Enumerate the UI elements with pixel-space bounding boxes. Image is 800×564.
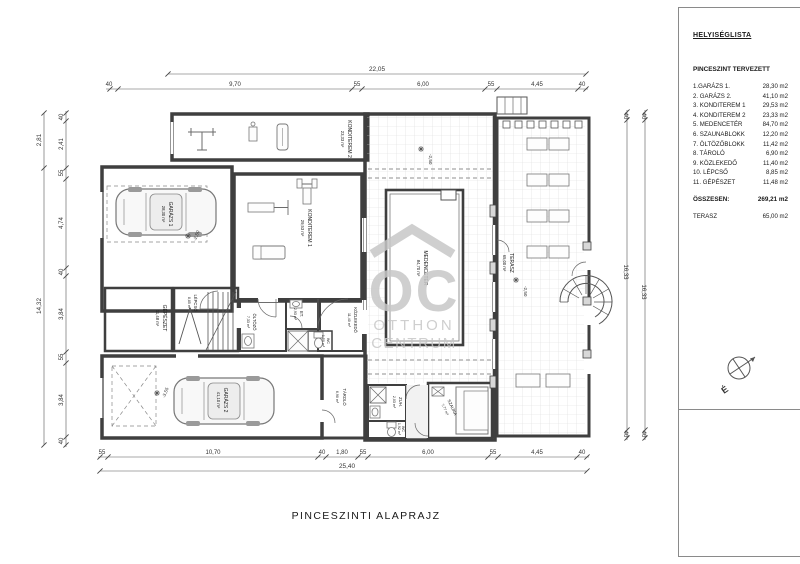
terrace-tiles: [499, 121, 585, 434]
total-row: ÖSSZESEN:269,21 m2: [693, 195, 788, 205]
drawing-sheet: 22,05 40 9,70 55 6,00 55 4,45 40 55 10,7…: [0, 0, 800, 564]
room-name: 5. MEDENCETÉR: [693, 120, 742, 130]
room-name: 9. KÖZLEKEDŐ: [693, 159, 737, 169]
floor-plan-svg: 22,05 40 9,70 55 6,00 55 4,45 40 55 10,7…: [0, 0, 678, 564]
level-garazs2: -3,55: [161, 386, 169, 398]
room-name: 4. KONDITEREM 2: [693, 111, 745, 121]
room-area: 8,85 m2: [766, 168, 788, 178]
label-area: 23,33 m²: [340, 131, 345, 148]
exterior-steps: [497, 97, 527, 114]
label-lepcso: LÉPCSŐ: [193, 295, 198, 313]
building: -2,50 -3,55 -2,50 -2,50 KONDITEREM 2 23,…: [99, 97, 612, 440]
room-area: 28,30 m2: [763, 82, 788, 92]
room-name: 7. ÖLTÖZŐBLOKK: [693, 140, 745, 150]
room-list-item: 3. KONDITEREM 129,53 m2: [693, 101, 788, 111]
level-terasz: -2,50: [523, 286, 528, 297]
compass-label: É: [719, 384, 730, 396]
dim-label: 55: [360, 450, 367, 456]
dim-label: 4,74: [59, 217, 65, 229]
watermark-logo: OC: [369, 259, 460, 324]
label-wc1: WC: [326, 338, 330, 344]
dim-label: 40: [622, 113, 628, 120]
label-area: 11,48 m²: [155, 310, 160, 327]
dim-label: 55: [354, 82, 361, 88]
dim-label: 2,41: [59, 138, 65, 150]
label-area: 29,53 m²: [300, 220, 305, 237]
label-area: 6,90 m²: [335, 391, 339, 404]
label-area: 65,00 m²: [502, 255, 507, 272]
room-konditerem1: [234, 174, 362, 301]
label-gepeszet: GÉPÉSZET: [161, 305, 168, 332]
dim-label: 40: [59, 437, 65, 444]
dim-label: 40: [640, 431, 646, 438]
room-name: 11. GÉPÉSZET: [693, 178, 735, 188]
label-area: 2,03 m²: [392, 396, 396, 409]
dim-label: 40: [579, 82, 586, 88]
dim-label: 16,33: [640, 284, 646, 300]
room-area: 84,70 m2: [763, 120, 788, 130]
room-name: 1.GARÁZS 1.: [693, 82, 730, 92]
label-area: 1,92 m²: [397, 423, 401, 436]
legend-heading: HELYISÉGLISTA: [693, 32, 751, 39]
panel-divider: [679, 409, 800, 410]
label-area: 2,93 m²: [293, 308, 297, 321]
label-konditerem1: KONDITEREM 1: [306, 209, 312, 247]
label-kozlekedo: KÖZLEKEDŐ: [353, 307, 358, 333]
total-label: ÖSSZESEN:: [693, 195, 729, 205]
total-area: 269,21 m2: [758, 195, 788, 205]
room-list-item: 11. GÉPÉSZET11,48 m2: [693, 178, 788, 188]
room-area: 41,10 m2: [763, 92, 788, 102]
room-area: 11,42 m2: [763, 140, 788, 150]
dim-label: 1,80: [336, 450, 348, 456]
dim-label: 40: [59, 113, 65, 120]
dim-label: 16,33: [622, 264, 628, 280]
dim-label: 6,00: [417, 82, 429, 88]
label-area: 1,50 m²: [321, 335, 325, 348]
room-area: 6,90 m2: [766, 149, 788, 159]
room-list-item: 10. LÉPCSŐ8,85 m2: [693, 168, 788, 178]
label-area: 8,85 m²: [187, 297, 191, 310]
room-list-item: 5. MEDENCETÉR84,70 m2: [693, 120, 788, 130]
room-area: 12,20 m2: [763, 130, 788, 140]
dim-label: 40: [319, 450, 326, 456]
room-area: 29,53 m2: [763, 101, 788, 111]
room-list-item: 8. TÁROLÓ6,90 m2: [693, 149, 788, 159]
label-area: 28,30 m²: [161, 206, 166, 223]
dim-label: 40: [106, 82, 113, 88]
label-area: 7,77 m²: [441, 403, 450, 416]
room-area: 11,40 m2: [763, 159, 788, 169]
title-block-panel: HELYISÉGLISTA PINCESZINT TERVEZETT 1.GAR…: [678, 7, 800, 557]
label-oltozo: ÖLTÖZŐ: [252, 314, 257, 332]
dim-top-total: 22,05: [369, 66, 385, 73]
room-name: 3. KONDITEREM 1: [693, 101, 745, 111]
label-area: 11,40 m²: [347, 313, 351, 328]
legend-subheading: PINCESZINT TERVEZETT: [693, 66, 770, 73]
dim-label: 3,84: [59, 394, 65, 406]
dim-left-total: 14,32: [36, 298, 43, 314]
label-tarolo: TÁROLÓ: [342, 388, 347, 406]
room-list-item: 6. SZAUNABLOKK12,20 m2: [693, 130, 788, 140]
dim-label: 40: [59, 268, 65, 275]
terasz-area: 65,00 m2: [763, 212, 788, 222]
room-name: 6. SZAUNABLOKK: [693, 130, 745, 140]
dim-label: 4,45: [531, 82, 543, 88]
room-name: 2. GARÁZS 2.: [693, 92, 732, 102]
terasz-row: TERASZ65,00 m2: [693, 212, 788, 222]
watermark-line2: CENTRUM: [371, 335, 457, 352]
dim-label: 9,70: [229, 82, 241, 88]
label-konditerem2: KONDITEREM 2: [346, 120, 352, 158]
dim-label: 40: [640, 113, 646, 120]
label-garazs2: GARÁZS 2: [222, 388, 229, 413]
dim-label: 55: [99, 450, 106, 456]
room-area: 11,48 m2: [763, 178, 788, 188]
dim-label: 40: [579, 450, 586, 456]
dim-left-top-total: 2,81: [36, 133, 43, 146]
room-konditerem2: [172, 114, 368, 160]
label-zuh: ZUH.: [398, 397, 403, 407]
dim-label: 10,70: [205, 450, 221, 456]
room-list-item: 4. KONDITEREM 223,33 m2: [693, 111, 788, 121]
label-garazs1: GARÁZS 1: [167, 202, 174, 227]
room-list-item: 7. ÖLTÖZŐBLOKK11,42 m2: [693, 140, 788, 150]
dim-label: 55: [490, 450, 497, 456]
room-list-item: 1.GARÁZS 1.28,30 m2: [693, 82, 788, 92]
terasz-label: TERASZ: [693, 212, 717, 222]
room-name: 8. TÁROLÓ: [693, 149, 725, 159]
dim-label: 4,45: [531, 450, 543, 456]
dim-label: 55: [59, 169, 65, 176]
dim-label: 40: [622, 431, 628, 438]
room-name: 10. LÉPCSŐ: [693, 168, 728, 178]
room-area: 23,33 m2: [763, 111, 788, 121]
level-medenceter: -2,50: [428, 154, 433, 165]
room-list: 1.GARÁZS 1.28,30 m2 2. GARÁZS 2.41,10 m2…: [693, 82, 788, 222]
dim-label: 55: [488, 82, 495, 88]
terrace-planters: [503, 121, 582, 128]
north-compass-icon: É: [717, 350, 765, 406]
dashed-reserved-area: [112, 366, 156, 426]
label-area: 7,33 m²: [246, 316, 250, 329]
sheet-title: PINCESZINTI ALAPRAJZ: [292, 510, 441, 522]
label-terasz: TERASZ: [508, 253, 514, 273]
dim-bottom-total: 25,40: [339, 463, 355, 470]
label-area: 41,10 m²: [216, 392, 221, 409]
dim-label: 6,00: [422, 450, 434, 456]
room-list-item: 9. KÖZLEKEDŐ11,40 m2: [693, 159, 788, 169]
dim-label: 3,84: [59, 308, 65, 320]
label-et: ET.: [299, 311, 304, 317]
room-list-item: 2. GARÁZS 2.41,10 m2: [693, 92, 788, 102]
dim-label: 55: [59, 353, 65, 360]
watermark-line1: OTTHON: [373, 317, 454, 334]
